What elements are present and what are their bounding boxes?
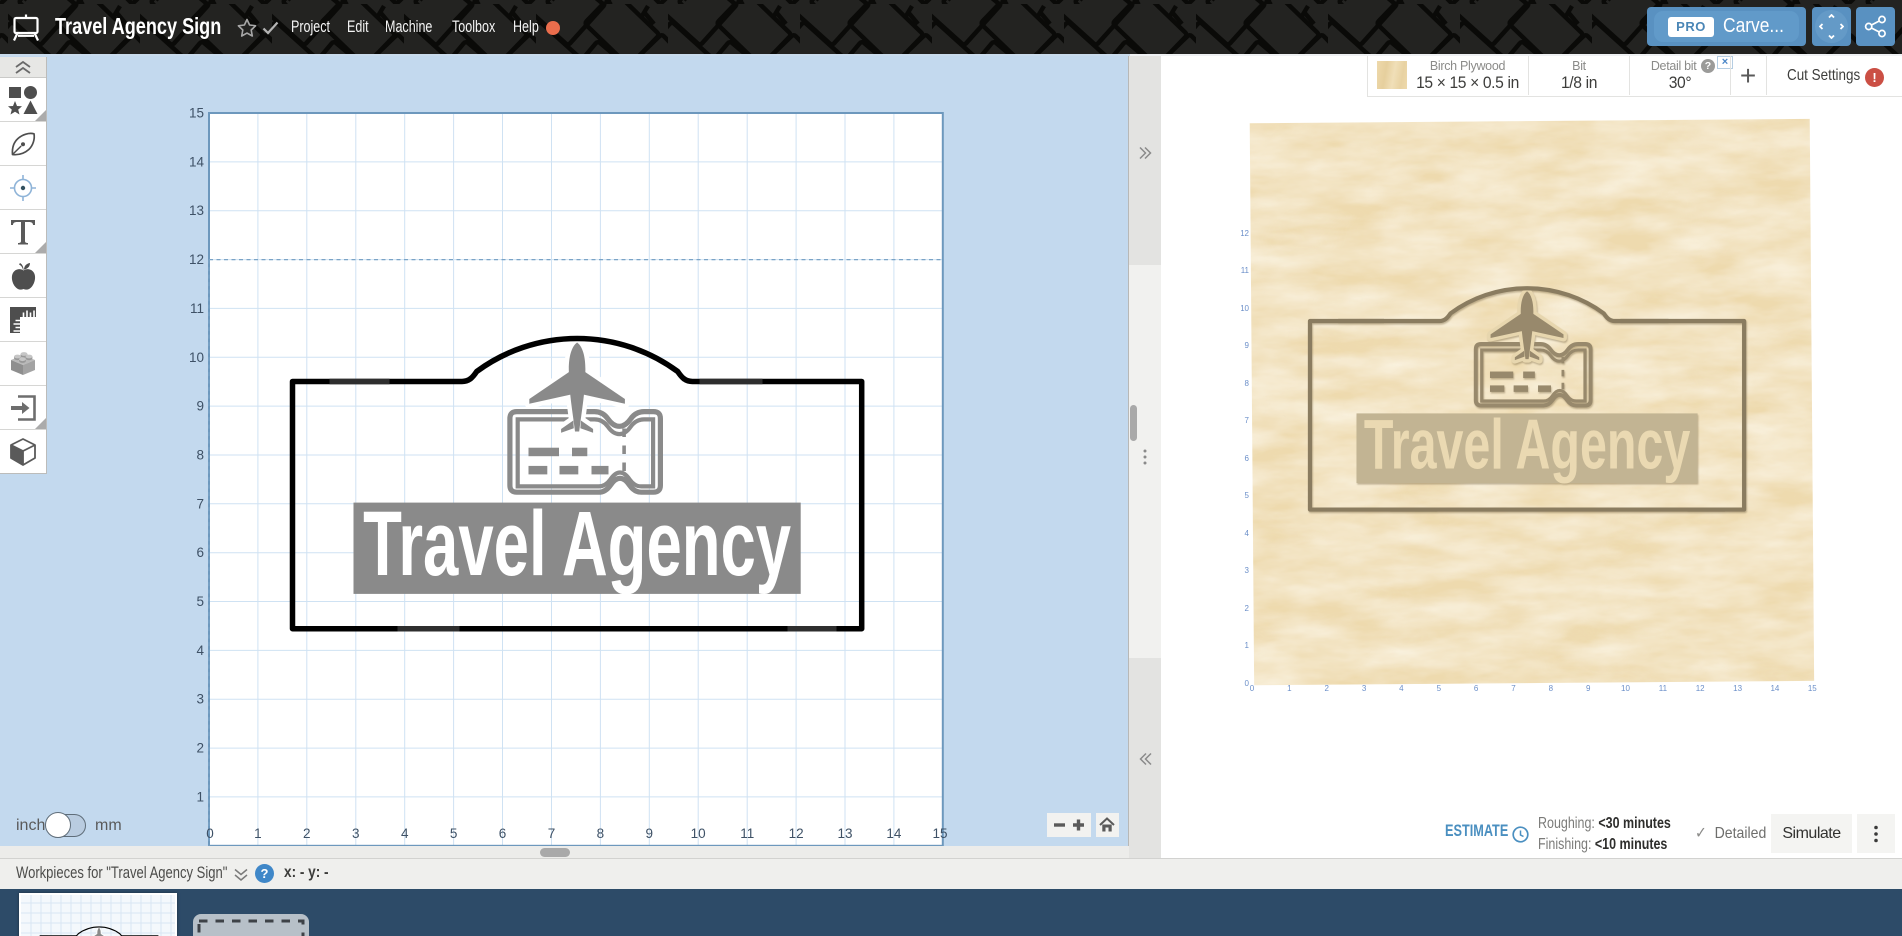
- svg-text:12: 12: [189, 252, 204, 267]
- svg-text:10: 10: [189, 350, 204, 365]
- svg-text:9: 9: [196, 399, 204, 414]
- svg-text:7: 7: [548, 826, 556, 841]
- svg-text:13: 13: [1733, 684, 1742, 693]
- svg-text:8: 8: [1245, 379, 1250, 388]
- svg-text:11: 11: [740, 826, 754, 841]
- svg-text:1: 1: [254, 826, 262, 841]
- svg-text:14: 14: [189, 154, 205, 169]
- svg-text:11: 11: [190, 301, 204, 316]
- svg-text:1: 1: [196, 789, 204, 804]
- svg-text:1: 1: [1245, 641, 1250, 650]
- svg-text:14: 14: [886, 826, 902, 841]
- svg-text:5: 5: [1245, 491, 1250, 500]
- svg-text:3: 3: [196, 692, 204, 707]
- svg-text:11: 11: [1659, 684, 1668, 693]
- svg-text:8: 8: [597, 826, 605, 841]
- svg-text:9: 9: [646, 826, 654, 841]
- svg-text:2: 2: [303, 826, 311, 841]
- svg-text:13: 13: [189, 203, 204, 218]
- svg-text:12: 12: [1241, 229, 1250, 238]
- svg-text:4: 4: [401, 826, 409, 841]
- svg-text:7: 7: [1245, 416, 1250, 425]
- svg-text:6: 6: [499, 826, 507, 841]
- svg-text:4: 4: [196, 643, 204, 658]
- svg-text:4: 4: [1245, 529, 1250, 538]
- svg-text:5: 5: [1437, 684, 1442, 693]
- svg-text:12: 12: [789, 826, 804, 841]
- svg-text:15: 15: [189, 106, 204, 121]
- svg-text:0: 0: [1250, 684, 1255, 693]
- svg-text:9: 9: [1586, 684, 1591, 693]
- svg-text:2: 2: [196, 741, 204, 756]
- svg-text:7: 7: [1511, 684, 1516, 693]
- svg-text:5: 5: [196, 594, 204, 609]
- svg-text:10: 10: [1241, 304, 1250, 313]
- svg-text:3: 3: [1245, 566, 1250, 575]
- svg-text:7: 7: [196, 496, 204, 511]
- svg-text:10: 10: [691, 826, 706, 841]
- svg-text:15: 15: [932, 826, 947, 841]
- svg-text:5: 5: [450, 826, 458, 841]
- svg-text:10: 10: [1621, 684, 1630, 693]
- svg-text:9: 9: [1245, 341, 1250, 350]
- svg-text:3: 3: [352, 826, 360, 841]
- svg-text:8: 8: [196, 448, 204, 463]
- svg-text:3: 3: [1362, 684, 1367, 693]
- svg-text:2: 2: [1324, 684, 1329, 693]
- svg-text:1: 1: [1287, 684, 1292, 693]
- svg-text:0: 0: [206, 826, 214, 841]
- svg-text:6: 6: [196, 545, 204, 560]
- svg-text:6: 6: [1474, 684, 1479, 693]
- svg-text:4: 4: [1399, 684, 1404, 693]
- svg-text:12: 12: [1696, 684, 1705, 693]
- svg-text:2: 2: [1245, 604, 1250, 613]
- svg-text:14: 14: [1770, 684, 1779, 693]
- svg-text:15: 15: [1808, 684, 1817, 693]
- svg-text:8: 8: [1549, 684, 1554, 693]
- svg-text:6: 6: [1245, 454, 1250, 463]
- svg-text:13: 13: [837, 826, 852, 841]
- svg-text:11: 11: [1241, 266, 1250, 275]
